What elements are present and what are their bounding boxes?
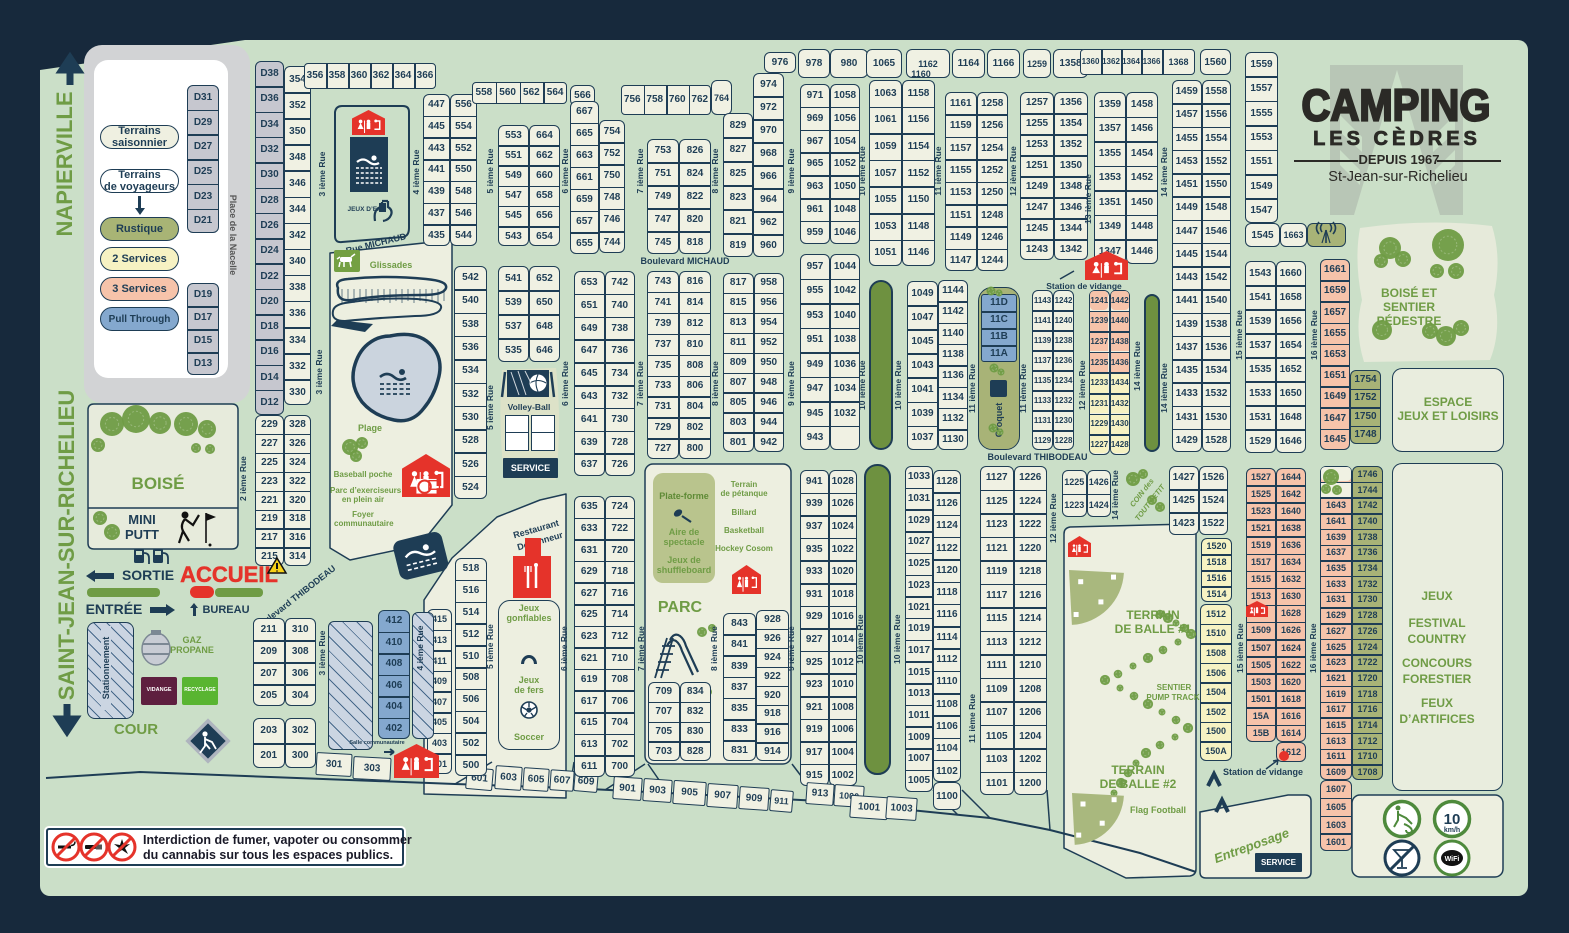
svg-text:km/h: km/h [1444,827,1460,834]
svg-text:10: 10 [1444,811,1461,828]
svg-text:WiFi: WiFi [1445,856,1460,863]
